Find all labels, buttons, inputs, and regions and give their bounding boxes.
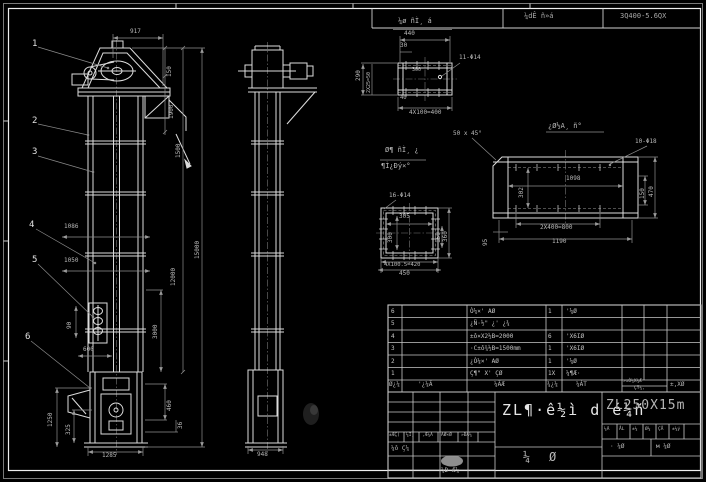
bom-header-qty: ¾¿¼ xyxy=(547,382,558,388)
bom-header-weight-top: »±Ò¼X¼Æ xyxy=(623,380,642,385)
bom-row-2-seq: 2 xyxy=(391,359,395,365)
bom-row-1-seq: 1 xyxy=(391,371,395,377)
bom-header-seq: Ø¿¼ xyxy=(389,382,400,388)
bom-header-weight-bottom: ÇŸ¼, xyxy=(634,387,645,392)
cad-drawing-sheet: ¼dÊ ñ»á3Q400-5.6QX¼ø ñÌ¸ á¿Ø½A¸ ñ°Ø¶ ñÌ¸… xyxy=(0,0,706,482)
bom-row-2-qty: 1 xyxy=(548,359,552,365)
bom-row-5-name: ¿Ñ·½" ¿' ¿¾ xyxy=(470,321,510,327)
bom-row-4-seq: 4 xyxy=(391,334,395,340)
bom-row-1-material: ¼¶Æ· xyxy=(566,371,580,377)
bom-row-1-name: Ç¶" X' ÇØ xyxy=(470,371,503,377)
bom-table-text: Ø¿¼ '¿¼Ã ¼ÃÆ ¾¿¼ ¼ÁT »±Ò¼X¼Æ ÇŸ¼, ±,XØ 6… xyxy=(0,0,706,482)
bom-row-3-qty: 1 xyxy=(548,346,552,352)
bom-header-name: ¼ÃÆ xyxy=(494,382,505,388)
bom-row-5-seq: 5 xyxy=(391,321,395,327)
bom-row-3-name: ·C±ô¾½B=1500mm xyxy=(470,346,521,352)
bom-row-6-material: '¼Ø xyxy=(566,309,577,315)
bom-row-6-qty: 1 xyxy=(548,309,552,315)
bom-row-4-qty: 6 xyxy=(548,334,552,340)
bom-row-4-material: 'X6IØ xyxy=(566,334,584,340)
bom-header-code: '¿¼Ã xyxy=(418,382,432,388)
bom-row-2-name: ¿Ò¼×' AØ xyxy=(470,359,499,365)
bom-row-6-name: Ò¼×' AØ xyxy=(470,309,495,315)
bom-row-2-material: '¼Ø xyxy=(566,359,577,365)
bom-row-1-qty: 1X xyxy=(548,371,555,377)
bom-row-6-seq: 6 xyxy=(391,309,395,315)
bom-header-note: ±,XØ xyxy=(670,382,684,388)
bom-header-material: ¼ÁT xyxy=(576,382,587,388)
bom-row-4-name: ±ô×X2½B=2000 xyxy=(470,334,513,340)
bom-row-3-material: 'X6IØ xyxy=(566,346,584,352)
bom-row-3-seq: 3 xyxy=(391,346,395,352)
